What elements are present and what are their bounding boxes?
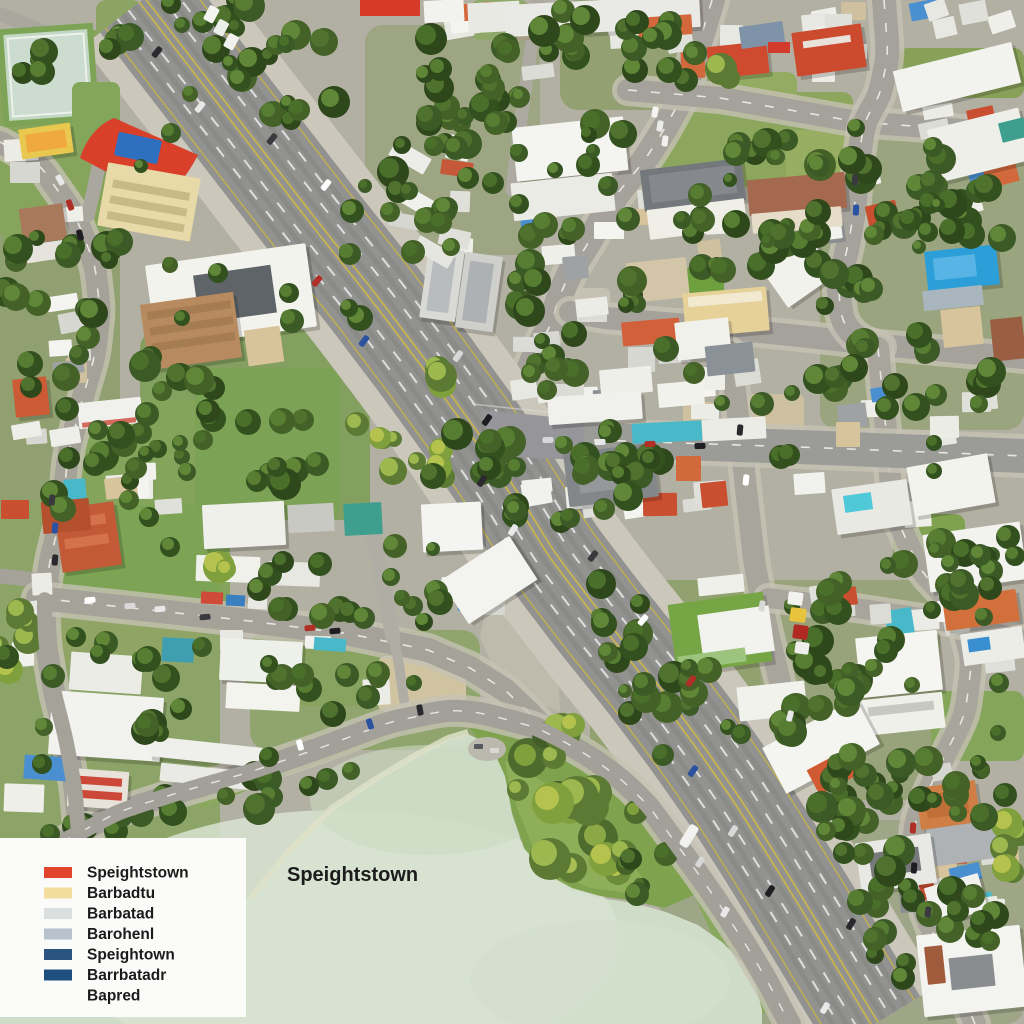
svg-text:Barrbatadr: Barrbatadr [87, 967, 166, 984]
svg-text:Barohenl: Barohenl [87, 926, 154, 943]
svg-text:Bapred: Bapred [87, 988, 140, 1005]
svg-text:Barbadtu: Barbadtu [87, 885, 155, 902]
svg-text:Barbatad: Barbatad [87, 906, 154, 923]
svg-text:Speightown: Speightown [87, 947, 175, 964]
svg-text:Speightstown: Speightstown [87, 865, 189, 882]
svg-text:Speightstown: Speightstown [287, 864, 418, 886]
